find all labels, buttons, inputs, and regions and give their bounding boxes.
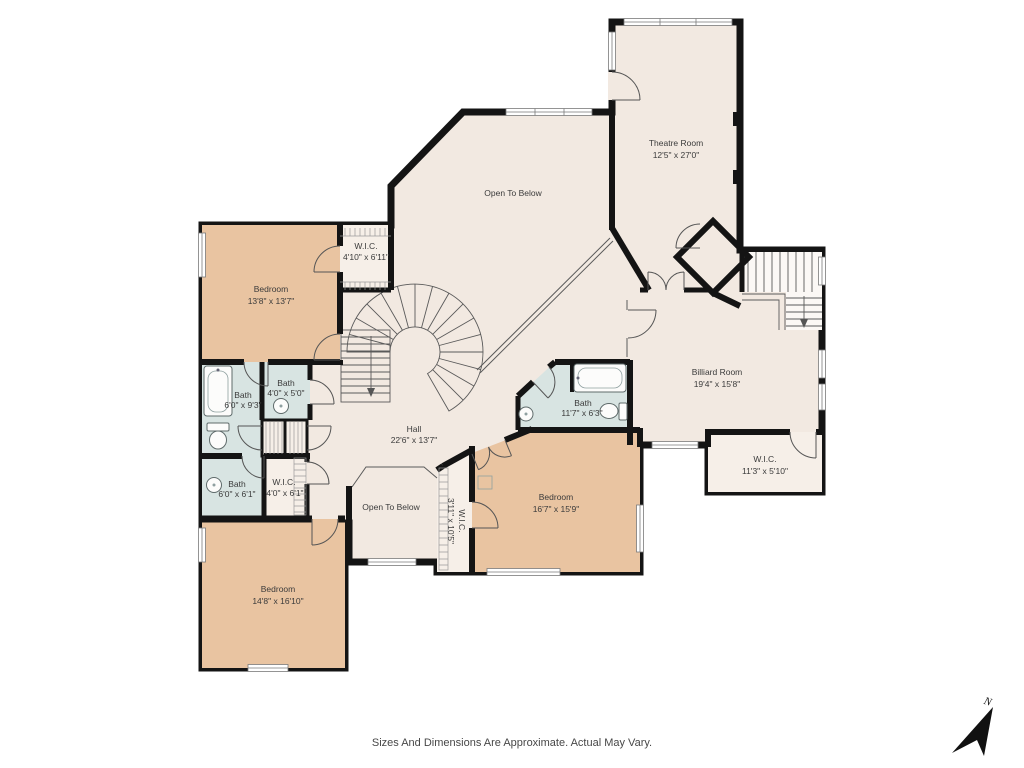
sink-1 — [274, 399, 289, 414]
svg-text:19'4" x 15'8": 19'4" x 15'8" — [694, 379, 741, 389]
svg-text:6'0" x 9'3": 6'0" x 9'3" — [224, 400, 261, 410]
svg-text:11'3" x 5'10": 11'3" x 5'10" — [742, 466, 788, 476]
svg-text:W.I.C.: W.I.C. — [753, 454, 776, 464]
svg-text:Theatre Room: Theatre Room — [649, 138, 703, 148]
sink-3 — [519, 407, 533, 421]
svg-text:Bedroom: Bedroom — [254, 284, 289, 294]
floor-plan-page: Theatre Room 12'5" x 27'0" Open To Below… — [0, 0, 1024, 768]
svg-text:16'7" x 15'9": 16'7" x 15'9" — [533, 504, 580, 514]
wall-pilaster-2 — [733, 170, 742, 184]
svg-text:W.I.C.: W.I.C. — [457, 509, 467, 532]
svg-text:Bedroom: Bedroom — [261, 584, 296, 594]
compass: N — [952, 695, 994, 756]
room-label-open-below-small: Open To Below — [362, 502, 420, 512]
l-stair-run-horizontal — [742, 252, 822, 292]
svg-text:Bath: Bath — [228, 479, 246, 489]
svg-text:W.I.C.: W.I.C. — [354, 241, 377, 251]
svg-text:3'11" x 10'5": 3'11" x 10'5" — [446, 498, 456, 544]
svg-text:4'0" x 6'1": 4'0" x 6'1" — [266, 488, 303, 498]
svg-text:4'0" x 5'0": 4'0" x 5'0" — [267, 388, 304, 398]
svg-text:22'6" x 13'7": 22'6" x 13'7" — [391, 435, 438, 445]
svg-text:12'5" x 27'0": 12'5" x 27'0" — [653, 150, 700, 160]
svg-text:Open To Below: Open To Below — [484, 188, 542, 198]
svg-text:11'7" x 6'3": 11'7" x 6'3" — [561, 408, 602, 418]
svg-text:Bath: Bath — [574, 398, 592, 408]
toilet-2 — [600, 403, 627, 420]
svg-text:Bedroom: Bedroom — [539, 492, 574, 502]
room-label-open-below-large: Open To Below — [484, 188, 542, 198]
floor-plan: Theatre Room 12'5" x 27'0" Open To Below… — [0, 0, 1024, 768]
svg-text:W.I.C.: W.I.C. — [272, 477, 295, 487]
svg-text:Open To Below: Open To Below — [362, 502, 420, 512]
svg-text:13'8" x 13'7": 13'8" x 13'7" — [248, 296, 295, 306]
svg-text:Bath: Bath — [277, 378, 295, 388]
svg-text:Bath: Bath — [234, 390, 252, 400]
svg-text:Hall: Hall — [407, 424, 422, 434]
svg-text:4'10" x 6'11": 4'10" x 6'11" — [343, 252, 389, 262]
wall-pilaster-1 — [733, 112, 742, 126]
north-label: N — [981, 695, 993, 709]
svg-text:Billiard Room: Billiard Room — [692, 367, 743, 377]
north-arrow-icon — [952, 707, 993, 756]
bathtub-2 — [574, 364, 626, 392]
svg-text:14'8" x 16'10": 14'8" x 16'10" — [252, 596, 303, 606]
disclaimer-text: Sizes And Dimensions Are Approximate. Ac… — [372, 737, 652, 749]
svg-text:6'0" x 6'1": 6'0" x 6'1" — [218, 489, 255, 499]
